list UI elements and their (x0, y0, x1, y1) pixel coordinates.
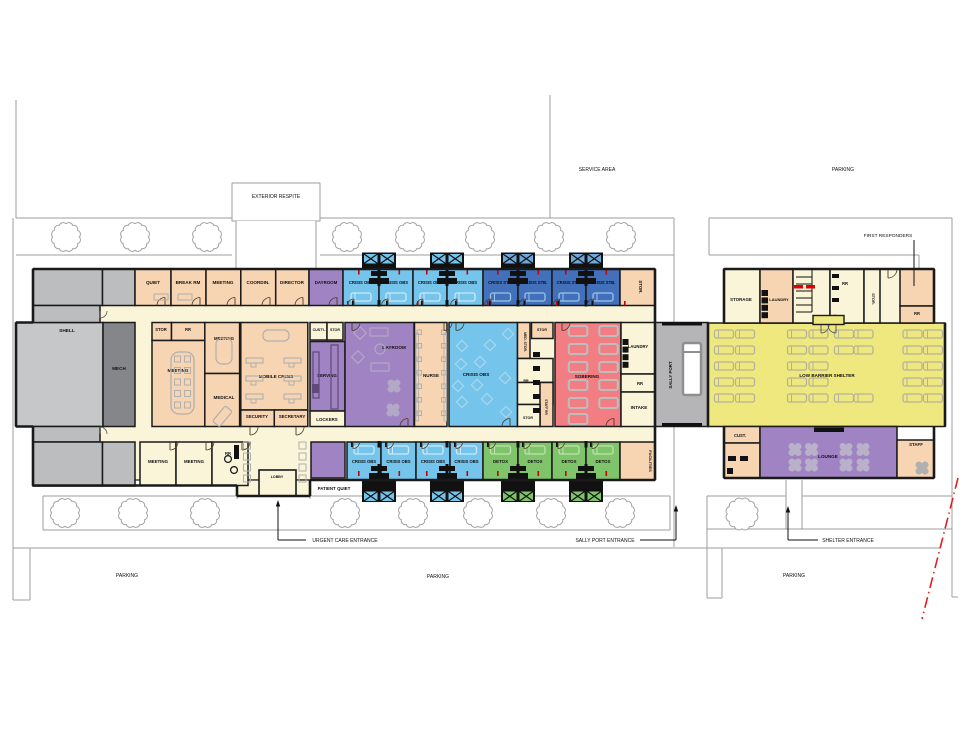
svg-text:FACILITIES: FACILITIES (648, 450, 653, 472)
svg-text:URGENT CARE ENTRANCE: URGENT CARE ENTRANCE (312, 538, 378, 544)
svg-text:PARKING: PARKING (116, 573, 138, 579)
svg-text:LOBBY: LOBBY (271, 475, 284, 479)
svg-text:PATIENT QUIET: PATIENT QUIET (318, 486, 351, 491)
svg-text:DETOX: DETOX (527, 459, 542, 464)
svg-text:DAYROOM: DAYROOM (315, 280, 338, 285)
svg-text:LOCKERS: LOCKERS (316, 417, 338, 422)
svg-text:PARKING: PARKING (832, 167, 854, 173)
svg-text:MEETING: MEETING (148, 459, 169, 464)
svg-text:STOR: STOR (155, 327, 167, 332)
svg-text:COORDIN.: COORDIN. (247, 280, 270, 285)
svg-text:FIRST RESPONDERS: FIRST RESPONDERS (864, 233, 913, 239)
svg-text:SECURITY: SECURITY (246, 414, 268, 419)
svg-text:STORAGE: STORAGE (730, 297, 752, 302)
svg-text:DIRECTOR: DIRECTOR (280, 280, 305, 285)
svg-text:BREAK RM: BREAK RM (176, 280, 201, 285)
svg-text:INTAKE: INTAKE (631, 405, 648, 410)
svg-text:DETOX: DETOX (561, 459, 576, 464)
svg-text:NURSE: NURSE (423, 373, 439, 378)
svg-text:MECH: MECH (112, 366, 126, 371)
svg-text:STOR: STOR (330, 328, 340, 332)
svg-text:CRISIS OBS: CRISIS OBS (352, 459, 376, 464)
svg-text:CUST.: CUST. (734, 433, 746, 438)
svg-text:SHELL: SHELL (59, 328, 75, 334)
svg-text:LAUNDRY: LAUNDRY (769, 297, 789, 302)
svg-text:CRISIS OBS: CRISIS OBS (386, 459, 410, 464)
svg-text:PARKING: PARKING (427, 574, 449, 580)
svg-text:SECRETARY: SECRETARY (279, 414, 306, 419)
svg-text:SERVICE AREA: SERVICE AREA (579, 167, 616, 173)
svg-text:STAFF: STAFF (909, 442, 923, 447)
svg-text:CRISIS OBS: CRISIS OBS (454, 459, 478, 464)
svg-text:STOR: STOR (523, 416, 533, 420)
svg-text:LOW BARRIER SHELTER: LOW BARRIER SHELTER (799, 373, 855, 378)
svg-text:STOR.: STOR. (871, 293, 875, 305)
svg-text:RR: RR (185, 327, 191, 332)
svg-text:MED. STOR.: MED. STOR. (523, 332, 527, 352)
svg-text:EXTERIOR RESPITE: EXTERIOR RESPITE (252, 194, 301, 200)
svg-text:RR: RR (842, 281, 848, 286)
svg-text:MEETING: MEETING (213, 280, 234, 285)
svg-text:DAYROOM: DAYROOM (382, 345, 406, 350)
svg-text:RR: RR (637, 381, 643, 386)
svg-text:SALLY PORT: SALLY PORT (668, 361, 673, 389)
svg-text:CUST'L: CUST'L (313, 328, 327, 332)
svg-text:PARKING: PARKING (783, 573, 805, 579)
svg-text:LAUNDRY: LAUNDRY (628, 344, 649, 349)
svg-text:CRISIS OBS: CRISIS OBS (421, 459, 445, 464)
svg-text:MEDICAL: MEDICAL (214, 395, 235, 400)
svg-text:MEETING: MEETING (184, 459, 205, 464)
svg-text:SERVING: SERVING (317, 373, 337, 378)
svg-text:QUIET: QUIET (146, 280, 160, 285)
svg-text:STOR.: STOR. (638, 280, 643, 293)
svg-text:DETOX: DETOX (595, 459, 610, 464)
svg-text:LOUNGE: LOUNGE (818, 454, 838, 459)
svg-text:SALLY PORT ENTRANCE: SALLY PORT ENTRANCE (575, 538, 635, 544)
svg-text:STAFF RR: STAFF RR (544, 399, 548, 415)
svg-text:RR: RR (914, 311, 920, 316)
svg-text:SOBERING: SOBERING (575, 374, 600, 379)
svg-text:SHELTER ENTRANCE: SHELTER ENTRANCE (822, 538, 874, 544)
svg-text:CRISIS OBS: CRISIS OBS (463, 372, 490, 377)
svg-text:DETOX: DETOX (493, 459, 508, 464)
svg-text:STOR: STOR (537, 328, 547, 332)
